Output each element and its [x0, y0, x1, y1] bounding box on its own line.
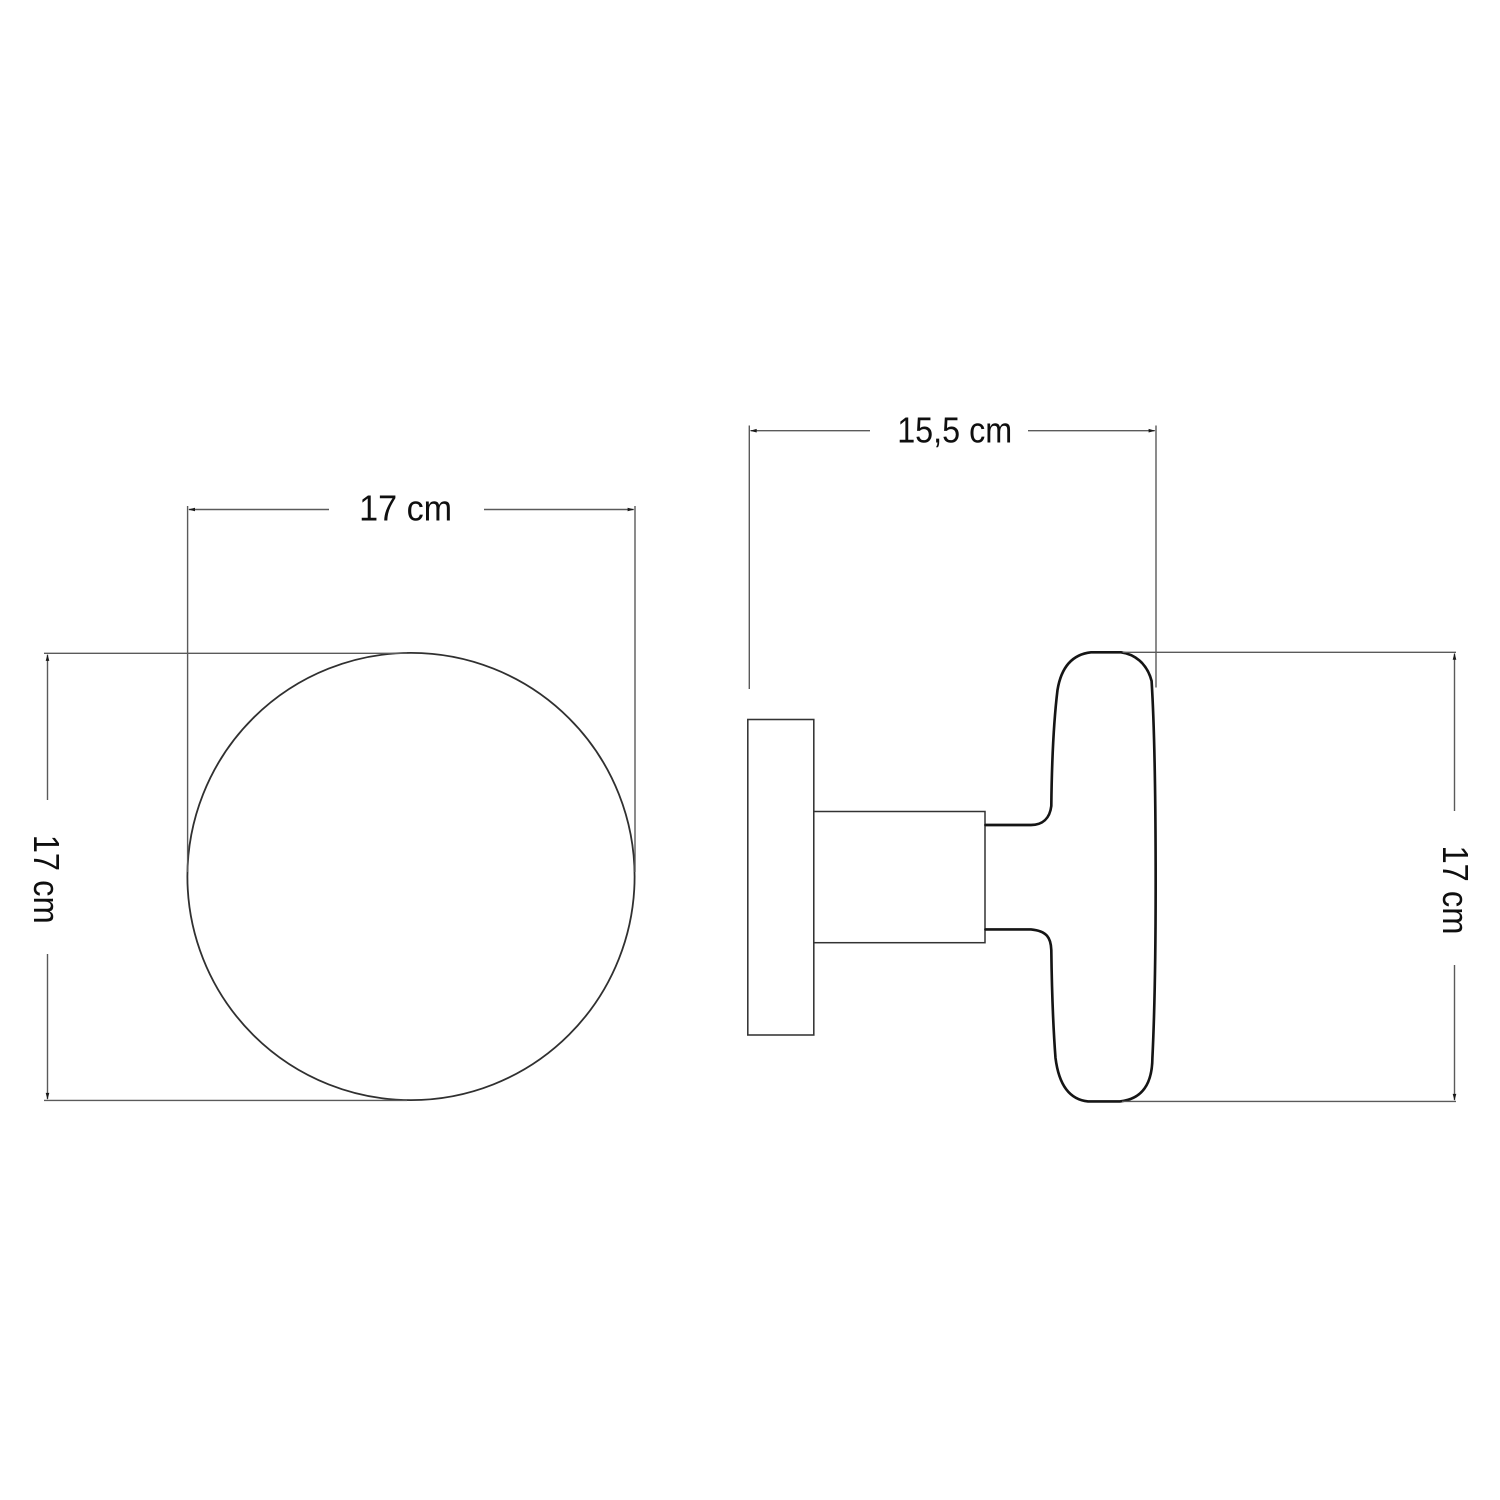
- svg-text:17 cm: 17 cm: [359, 488, 452, 529]
- svg-text:17 cm: 17 cm: [26, 835, 67, 924]
- svg-text:17 cm: 17 cm: [1435, 846, 1476, 935]
- svg-text:15,5 cm: 15,5 cm: [897, 410, 1012, 451]
